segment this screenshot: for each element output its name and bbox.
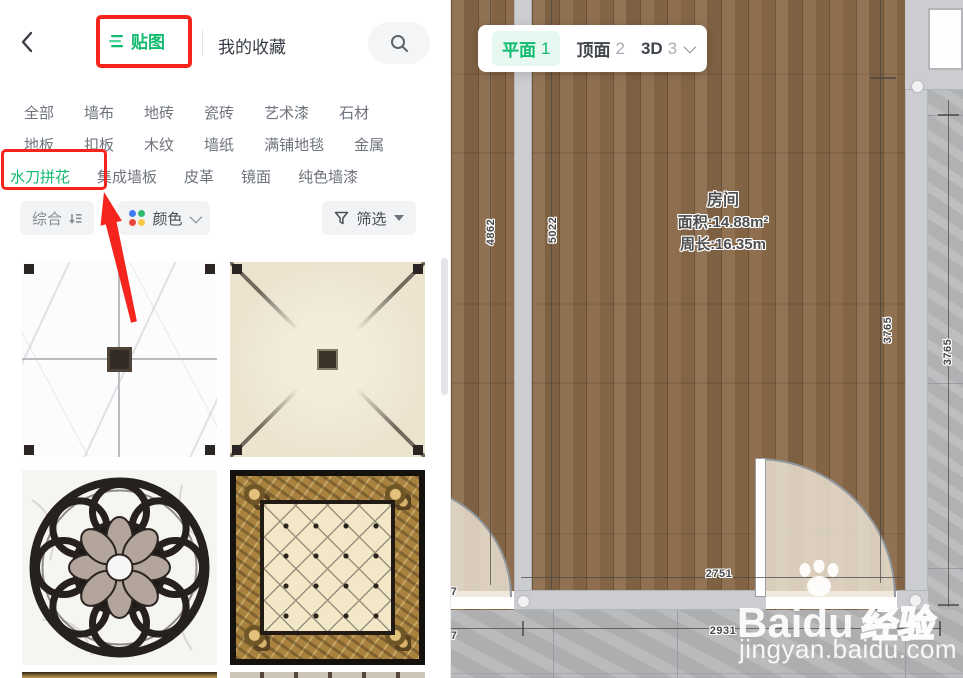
view-tab-ceiling-hotkey: 2 xyxy=(615,39,624,59)
dimension-tick xyxy=(938,604,959,606)
dimension-label-clipped: 7 xyxy=(451,586,457,598)
view-tab-ceiling-label: 顶面 xyxy=(576,36,610,61)
wall-node-dot[interactable] xyxy=(910,595,921,606)
category-waterjet-mosaic[interactable]: 水刀拼花 xyxy=(10,166,70,187)
view-tab-3d-label: 3D xyxy=(641,39,663,59)
chevron-down-icon xyxy=(684,41,697,54)
filter-label: 筛选 xyxy=(356,208,386,229)
category-row-1: 全部 墙布 地砖 瓷砖 艺术漆 石材 xyxy=(0,96,440,128)
back-button[interactable] xyxy=(20,30,44,58)
chevron-down-solid-icon xyxy=(394,215,404,221)
tile-corner-inlay xyxy=(24,445,34,455)
view-tab-3d-hotkey: 3 xyxy=(668,39,677,59)
dimension-line xyxy=(451,628,941,629)
material-design-app: 贴图 我的收藏 全部 墙布 地砖 瓷砖 艺术漆 石材 地板 xyxy=(0,0,963,678)
gold-border xyxy=(236,476,419,659)
sort-label: 综合 xyxy=(32,208,62,229)
sort-button[interactable]: 综合 xyxy=(20,201,94,235)
search-button[interactable] xyxy=(368,22,430,64)
category-wood-grain[interactable]: 木纹 xyxy=(144,134,174,155)
view-switcher: 平面 1 顶面 2 3D 3 xyxy=(478,25,707,72)
tab-favorites-label: 我的收藏 xyxy=(218,38,286,57)
room-area: 面积:14.88m² xyxy=(678,212,769,234)
color-palette-icon xyxy=(129,210,145,226)
next-row-thumbnail-partial[interactable] xyxy=(230,672,425,678)
category-wallpaper[interactable]: 墙纸 xyxy=(204,134,234,155)
tile-joint-line xyxy=(553,610,554,678)
door-swing-arc-left[interactable] xyxy=(451,485,512,597)
view-tab-plan-label: 平面 xyxy=(502,36,536,61)
tile-corner-inlay xyxy=(205,445,215,455)
results-toolbar: 综合 颜色 筛选 xyxy=(0,201,451,237)
tile-joint-line xyxy=(677,610,678,678)
tab-textures-label: 贴图 xyxy=(131,28,165,53)
tile-corner-inlay xyxy=(413,445,423,455)
category-all[interactable]: 全部 xyxy=(24,102,54,123)
category-buckle-panel[interactable]: 扣板 xyxy=(84,134,114,155)
sidebar-scrollbar[interactable] xyxy=(441,258,448,395)
room-info-label: 房间 面积:14.88m² 周长:16.35m xyxy=(678,190,769,256)
category-integrated-wallboard[interactable]: 集成墙板 xyxy=(97,166,157,187)
tile-corner-inlay xyxy=(232,445,242,455)
header-divider xyxy=(202,30,203,56)
tile-corner-inlay xyxy=(24,264,34,274)
dimension-line xyxy=(880,0,881,583)
chevron-down-icon xyxy=(189,210,202,223)
category-row-2: 地板 扣板 木纹 墙纸 满铺地毯 金属 xyxy=(0,128,440,160)
dimension-label-2751: 2751 xyxy=(706,568,732,580)
view-tab-ceiling[interactable]: 顶面 2 xyxy=(576,36,624,61)
texture-thumbnail-white-marble-cross[interactable] xyxy=(22,262,217,457)
category-floor-tile[interactable]: 地砖 xyxy=(144,102,174,123)
filter-button[interactable]: 筛选 xyxy=(322,201,416,235)
funnel-icon xyxy=(334,211,349,225)
dimension-tick xyxy=(522,621,524,636)
dimension-label-2931: 2931 xyxy=(710,625,736,637)
tile-corner-inlay xyxy=(232,264,242,274)
category-ceramic-tile[interactable]: 瓷砖 xyxy=(204,102,234,123)
color-filter-button[interactable]: 颜色 xyxy=(118,201,210,235)
category-art-paint[interactable]: 艺术漆 xyxy=(264,102,309,123)
room-name: 房间 xyxy=(678,190,769,212)
tab-favorites[interactable]: 我的收藏 xyxy=(218,33,286,58)
category-mirror[interactable]: 镜面 xyxy=(241,166,271,187)
adjacent-room-floor-bottom[interactable] xyxy=(451,610,963,678)
sort-icon xyxy=(69,212,82,225)
room-perimeter: 周长:16.35m xyxy=(678,234,769,256)
dimension-label-4862: 4862 xyxy=(485,219,497,245)
texture-thumbnail-gold-lattice[interactable] xyxy=(230,470,425,665)
category-solid-paint[interactable]: 纯色墙漆 xyxy=(298,166,358,187)
category-stone[interactable]: 石材 xyxy=(339,102,369,123)
tab-textures[interactable]: 贴图 xyxy=(108,28,165,53)
next-row-thumbnail-partial[interactable] xyxy=(22,672,217,678)
floorplan-canvas[interactable]: 4862 5022 3765 3765 2751 2931 7 7 房间 面积:… xyxy=(451,0,963,678)
dimension-label-clipped: 7 xyxy=(451,630,457,642)
wall-vertical-left[interactable] xyxy=(514,0,532,610)
category-row-3: 水刀拼花 集成墙板 皮革 镜面 纯色墙漆 xyxy=(0,160,440,192)
dimension-label-5022: 5022 xyxy=(547,217,559,243)
category-wood-floor[interactable]: 地板 xyxy=(24,134,54,155)
dimension-tick xyxy=(870,77,896,79)
window[interactable] xyxy=(928,8,963,70)
tile-center-inlay xyxy=(107,347,132,372)
texture-thumbnail-ring-medallion[interactable] xyxy=(22,470,217,665)
dimension-line xyxy=(551,0,552,590)
wall-bottom[interactable] xyxy=(514,590,766,610)
view-tab-plan-hotkey: 1 xyxy=(541,39,550,59)
category-wallcloth[interactable]: 墙布 xyxy=(84,102,114,123)
dimension-label-3765-right: 3765 xyxy=(942,339,954,365)
wall-node-dot[interactable] xyxy=(518,596,529,607)
materials-sidebar: 贴图 我的收藏 全部 墙布 地砖 瓷砖 艺术漆 石材 地板 xyxy=(0,0,451,678)
view-tab-plan[interactable]: 平面 1 xyxy=(492,31,560,66)
category-metal[interactable]: 金属 xyxy=(354,134,384,155)
medallion-graphic xyxy=(22,470,217,665)
sidebar-header: 贴图 我的收藏 xyxy=(0,18,451,70)
tile-corner-inlay xyxy=(205,264,215,274)
lattice-field xyxy=(260,500,395,635)
back-chevron-icon xyxy=(20,30,34,54)
tile-corner-inlay xyxy=(413,264,423,274)
tile-joint-line xyxy=(928,568,963,569)
dimension-line xyxy=(490,0,491,585)
category-filter-group: 全部 墙布 地砖 瓷砖 艺术漆 石材 地板 扣板 木纹 墙纸 满铺地毯 金属 水… xyxy=(0,96,440,192)
wall-node-dot[interactable] xyxy=(912,81,923,92)
list-icon xyxy=(108,34,124,48)
category-carpet[interactable]: 满铺地毯 xyxy=(264,134,324,155)
tile-joint-line xyxy=(905,610,906,678)
dimension-label-3765: 3765 xyxy=(882,317,894,343)
tile-joint-line xyxy=(451,673,963,674)
category-leather[interactable]: 皮革 xyxy=(184,166,214,187)
color-filter-label: 颜色 xyxy=(152,208,182,229)
view-tab-3d[interactable]: 3D 3 xyxy=(641,39,693,59)
dimension-tick xyxy=(939,621,941,636)
search-icon xyxy=(389,33,409,53)
tile-center-inlay xyxy=(317,349,338,370)
dimension-tick xyxy=(938,114,959,116)
tile-joint-line xyxy=(928,383,963,384)
texture-thumbnail-beige-marble-diagonal[interactable] xyxy=(230,262,425,457)
